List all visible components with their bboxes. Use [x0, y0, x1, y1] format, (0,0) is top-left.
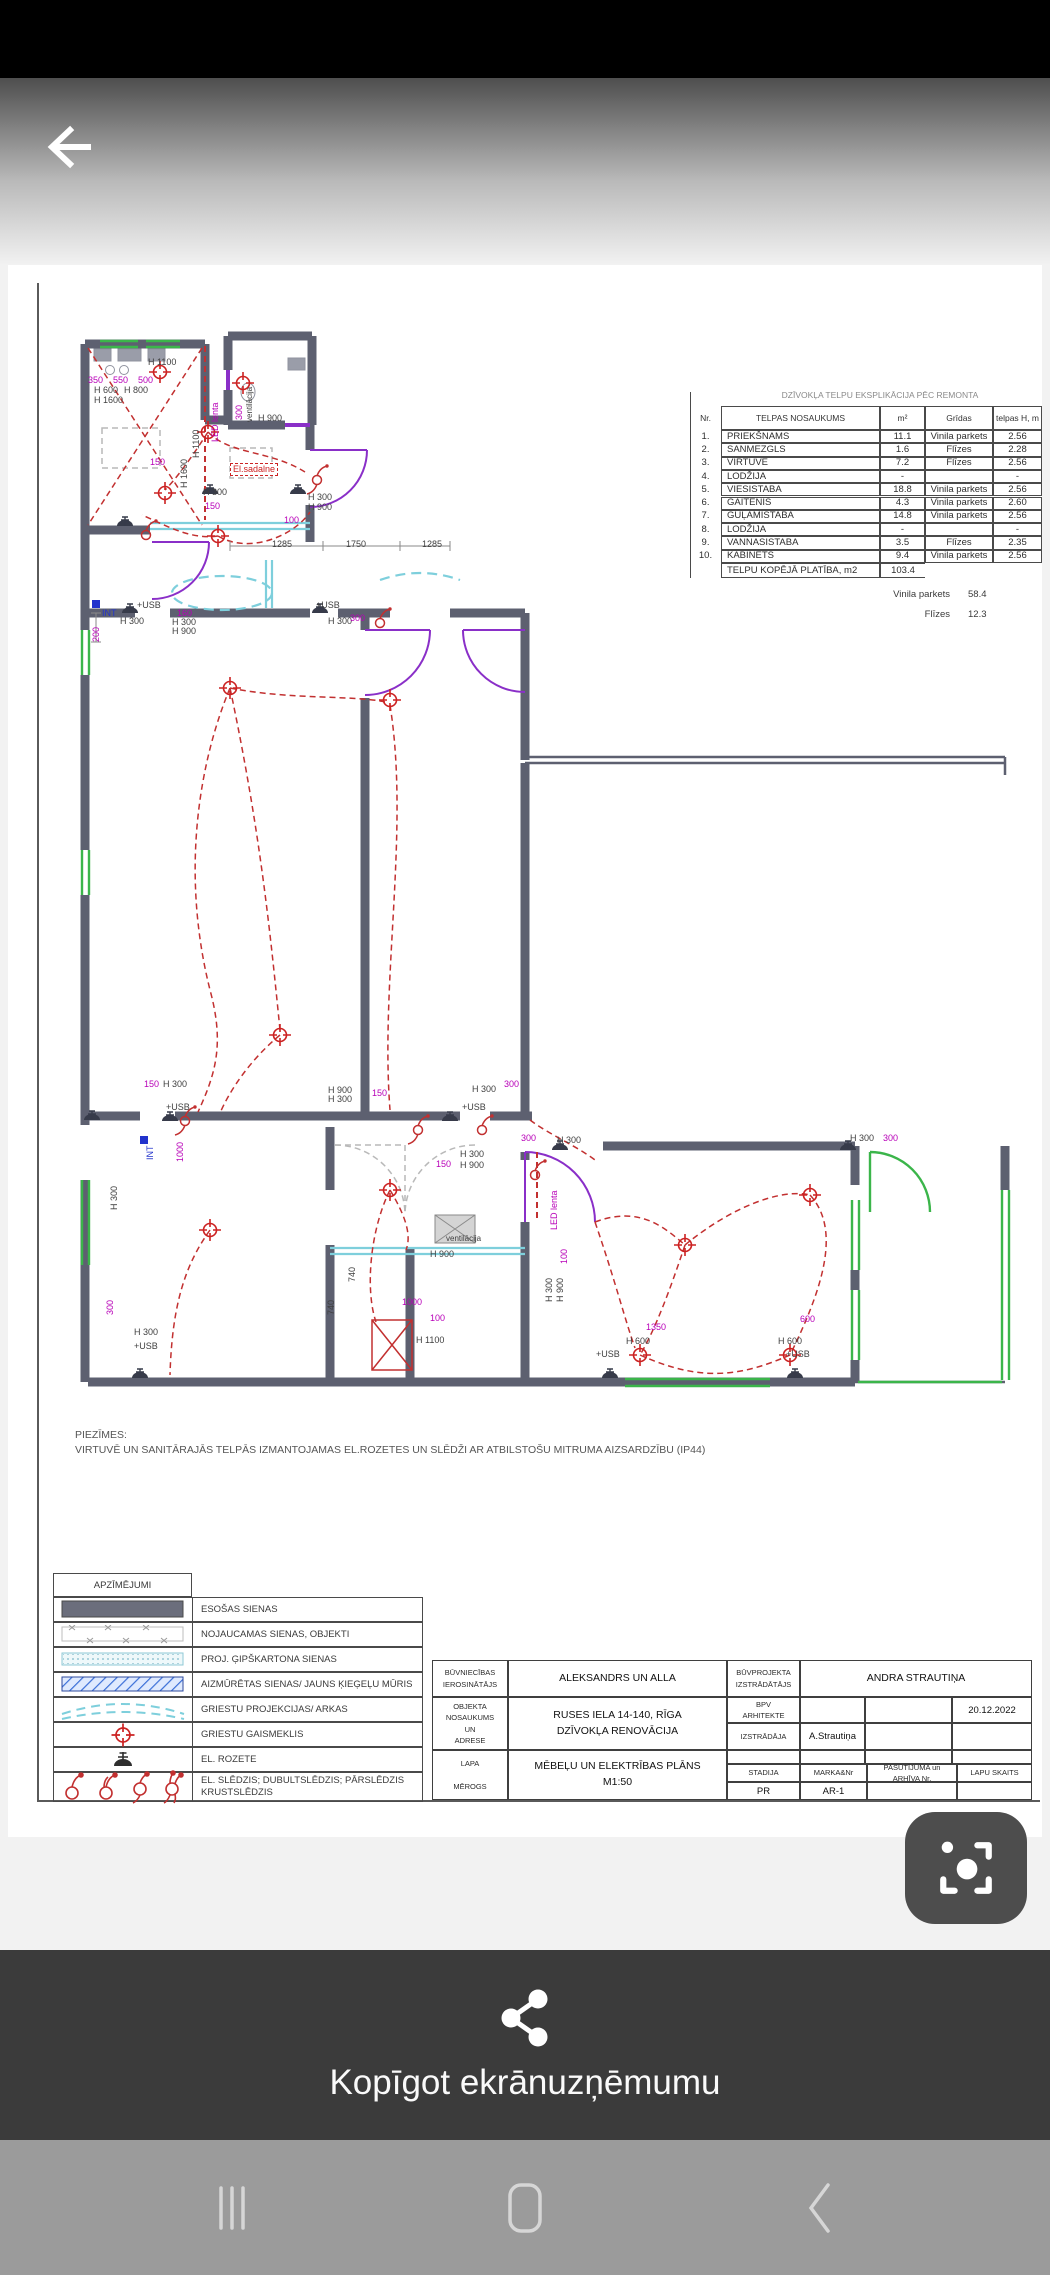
notes-line: VIRTUVĒ UN SANITĀRAJĀS TELPĀS IZMANTOJAM…: [75, 1443, 705, 1458]
titleblock-row-label: BPV ARHITEKTE: [727, 1697, 800, 1723]
plan-label: H 300: [328, 1095, 352, 1104]
plan-label: H 300: [557, 1136, 581, 1145]
legend-label: NOJAUCAMAS SIENAS, OBJEKTI: [193, 1629, 422, 1641]
plan-label: H 600: [626, 1337, 650, 1346]
int-markers: [92, 600, 148, 1144]
legend-label: EL. ROZETE: [193, 1754, 422, 1766]
legend-row: GRIESTU PROJEKCIJAS/ ARKAS: [53, 1697, 423, 1722]
legend-symbol-existing-wall: [54, 1598, 193, 1621]
plan-label: H 300: [163, 1080, 187, 1089]
titleblock-designer-value: ANDRA STRAUTIŅA: [800, 1660, 1032, 1697]
share-screenshot-button[interactable]: Kopīgot ekrānuzņēmumu: [0, 1950, 1050, 2140]
plan-label: H 300: [308, 493, 332, 502]
back-nav-button[interactable]: [775, 2140, 865, 2275]
plan-label: H 300: [472, 1085, 496, 1094]
titleblock-left-label: LAPA MĒROGS: [432, 1750, 508, 1800]
plan-label: H 300: [545, 1278, 554, 1302]
switches: [142, 464, 547, 1179]
plan-label: H 300: [328, 617, 352, 626]
plan-label: +USB: [786, 1350, 810, 1359]
fixtures: [94, 349, 475, 1243]
titleblock-footer-value: PR: [727, 1782, 800, 1800]
plan-label: H 300: [120, 617, 144, 626]
dimension-lines: [91, 541, 450, 642]
plan-label: 1000: [402, 1298, 422, 1307]
home-button[interactable]: [480, 2140, 570, 2275]
titleblock-row-cell: [865, 1723, 952, 1750]
titleblock-row-cell: 20.12.2022: [952, 1697, 1032, 1723]
plan-label: 1285: [272, 540, 292, 549]
plan-label: 150: [150, 458, 165, 467]
frame-line-left: [37, 283, 39, 1802]
legend-label: ESOŠAS SIENAS: [193, 1604, 422, 1616]
titleblock-footer-value: [957, 1782, 1032, 1800]
socket-symbol: [290, 485, 306, 494]
plan-label: H 300: [203, 488, 227, 497]
legend-label: AIZMŪRĒTAS SIENAS/ JAUNS ĶIEĢEĻU MŪRIS: [193, 1679, 422, 1691]
plan-label: 200: [92, 627, 101, 642]
legend-symbol-ceiling-light: [54, 1723, 193, 1746]
plan-label: 600: [800, 1315, 815, 1324]
plan-label: LED lenta: [550, 1190, 559, 1230]
plan-label: 500: [138, 376, 153, 385]
plan-label: 150: [144, 1080, 159, 1089]
plan-label: +USB: [137, 601, 161, 610]
plan-label: H 300: [460, 1150, 484, 1159]
plan-label: LED lenta: [211, 402, 220, 442]
sockets: [84, 485, 856, 1378]
floor-plan: H 1100350550500H 600H 800H 1600LED lenta…: [80, 330, 1020, 1405]
legend-row: AIZMŪRĒTAS SIENAS/ JAUNS ĶIEĢEĻU MŪRIS: [53, 1672, 423, 1697]
legend-symbol-ceiling-arc: [54, 1698, 193, 1721]
socket-symbol: [117, 517, 133, 526]
plan-label: H 300: [850, 1134, 874, 1143]
share-label: Kopīgot ekrānuzņēmumu: [329, 2063, 720, 2103]
plan-label: 550: [113, 376, 128, 385]
plan-label: 300: [350, 614, 365, 623]
switch-symbol: [307, 464, 329, 494]
plan-label: 150: [205, 502, 220, 511]
ceiling-light-symbol: [154, 482, 176, 504]
recents-button[interactable]: [187, 2140, 277, 2275]
plan-label: H 900: [172, 627, 196, 636]
legend-symbol-bricked-wall: [54, 1673, 193, 1696]
plan-label: 300: [504, 1080, 519, 1089]
legend-label: GRIESTU GAISMEKLIS: [193, 1729, 422, 1741]
titleblock-row-label: IZSTRĀDĀJA: [727, 1723, 800, 1750]
plan-label: H 1600: [180, 459, 189, 488]
plan-label: H 1100: [416, 1336, 444, 1345]
plan-label: H 800: [124, 386, 148, 395]
plan-label: H 1100: [148, 358, 176, 367]
plan-label: ventilācija: [446, 1235, 481, 1243]
plan-label: 1750: [346, 540, 366, 549]
legend-row: EL. SLĒDZIS; DUBULTSLĒDZIS; PĀRSLĒDZIS K…: [53, 1772, 423, 1802]
legend-symbol-demolish-wall: [54, 1623, 193, 1646]
plan-label: H 900: [556, 1278, 565, 1302]
titleblock-row-cell: [952, 1723, 1032, 1750]
plan-label: 300: [521, 1134, 536, 1143]
plan-label: H 600: [778, 1337, 802, 1346]
titleblock-footer-header: LAPU SKAITS: [957, 1764, 1032, 1782]
switch-symbol: [531, 1159, 547, 1179]
ceiling-lights: [149, 361, 821, 1366]
plan-label: +USB: [316, 601, 340, 610]
windows: [82, 341, 1009, 1386]
titleblock-left-value: MĒBEĻU UN ELEKTRĪBAS PLĀNS M1:50: [508, 1750, 727, 1800]
plan-label: +USB: [462, 1103, 486, 1112]
socket-symbol: [132, 1369, 148, 1378]
notes-title: PIEZĪMES:: [75, 1428, 705, 1443]
plan-label: H 900: [258, 414, 282, 423]
titleblock-row-cell: A.Strautiņa: [800, 1723, 865, 1750]
plan-label: 740: [327, 1300, 336, 1315]
plan-label: H 900: [460, 1161, 484, 1170]
legend-row: ESOŠAS SIENAS: [53, 1597, 423, 1622]
legend-row: NOJAUCAMAS SIENAS, OBJEKTI: [53, 1622, 423, 1647]
plan-label: 300: [883, 1134, 898, 1143]
titleblock-footer-header: STADIJA: [727, 1764, 800, 1782]
titleblock-footer-header: MARKA&Nr: [800, 1764, 867, 1782]
plan-label: El.sadalne: [230, 463, 278, 476]
plan-label: 350: [88, 376, 103, 385]
plan-label: ventilācija: [246, 387, 254, 422]
plan-label: H 300: [134, 1328, 158, 1337]
legend-row: PROJ. ĢIPŠKARTONA SIENAS: [53, 1647, 423, 1672]
phone-screen: DZĪVOKĻA TELPU EKSPLIKĀCIJA PĒC REMONTA …: [0, 0, 1050, 2275]
android-nav-bar: [0, 2140, 1050, 2275]
status-bar: [0, 0, 1050, 78]
plan-label: 300: [235, 405, 244, 420]
plan-label: 150: [436, 1160, 451, 1169]
titleblock-left-value: ALEKSANDRS UN ALLA: [508, 1660, 727, 1697]
titleblock-row-cell: [800, 1697, 865, 1723]
legend-symbol-switches: [54, 1773, 193, 1801]
plan-label: 100: [560, 1249, 569, 1264]
boundary-lines: [525, 757, 1005, 1382]
titleblock-left-label: BŪVNIECĪBAS IEROSINĀTĀJS: [432, 1660, 508, 1697]
plan-label: H 600: [94, 386, 118, 395]
titleblock-footer-value: AR-1: [800, 1782, 867, 1800]
notes: PIEZĪMES: VIRTUVĒ UN SANITĀRAJĀS TELPĀS …: [75, 1428, 705, 1458]
top-gradient-overlay: [0, 78, 1050, 265]
back-arrow-icon[interactable]: [38, 112, 108, 182]
socket-symbol: [602, 1369, 618, 1378]
switch-symbol: [478, 1114, 494, 1134]
plan-label: 1000: [176, 1142, 185, 1162]
plan-label: 100: [430, 1314, 445, 1323]
titleblock-footer-value: [867, 1782, 957, 1800]
plan-label: INT: [102, 609, 117, 618]
titleblock-footer-header: PASŪTĪJUMA un ARHĪVA Nr.: [867, 1764, 957, 1782]
plan-label: 150: [372, 1089, 387, 1098]
plan-label: H 1600: [94, 396, 123, 405]
smart-select-button[interactable]: [905, 1812, 1027, 1924]
plan-label: +USB: [166, 1103, 190, 1112]
plan-label: 740: [348, 1267, 357, 1282]
titleblock-designer-label: BŪVPROJEKTA IZSTRĀDĀTĀJS: [727, 1660, 800, 1697]
legend-label: PROJ. ĢIPŠKARTONA SIENAS: [193, 1654, 422, 1666]
share-icon: [494, 1987, 556, 2049]
plan-label: 100: [284, 516, 299, 525]
legend-row: GRIESTU GAISMEKLIS: [53, 1722, 423, 1747]
titleblock-row-cell: [865, 1697, 952, 1723]
legend-symbol-gypsum-wall: [54, 1648, 193, 1671]
plan-label: H 300: [110, 1186, 119, 1210]
plan-label: 1285: [422, 540, 442, 549]
legend-header: APZĪMĒJUMI: [53, 1573, 192, 1597]
plan-label: 1350: [646, 1323, 666, 1332]
plan-label: H 900: [308, 503, 332, 512]
scan-icon: [933, 1837, 999, 1899]
plan-label: 300: [106, 1300, 115, 1315]
socket-symbol: [787, 1369, 803, 1378]
plan-label: H 1100: [192, 430, 201, 458]
titleblock-empty: [952, 1750, 1032, 1764]
plan-label: INT: [146, 1146, 155, 1161]
titleblock-empty: [800, 1750, 865, 1764]
titleblock-empty: [727, 1750, 800, 1764]
legend-label: EL. SLĒDZIS; DUBULTSLĒDZIS; PĀRSLĒDZIS K…: [193, 1775, 422, 1799]
plan-label: +USB: [596, 1350, 620, 1359]
titleblock-left-value: RUSES IELA 14-140, RĪGA DZĪVOKĻA RENOVĀC…: [508, 1697, 727, 1750]
titleblock-left-label: OBJEKTA NOSAUKUMS UN ADRESE: [432, 1697, 508, 1750]
legend-symbol-socket: [54, 1748, 193, 1771]
plan-label: H 900: [430, 1250, 454, 1259]
legend-label: GRIESTU PROJEKCIJAS/ ARKAS: [193, 1704, 422, 1716]
plan-label: +USB: [134, 1342, 158, 1351]
